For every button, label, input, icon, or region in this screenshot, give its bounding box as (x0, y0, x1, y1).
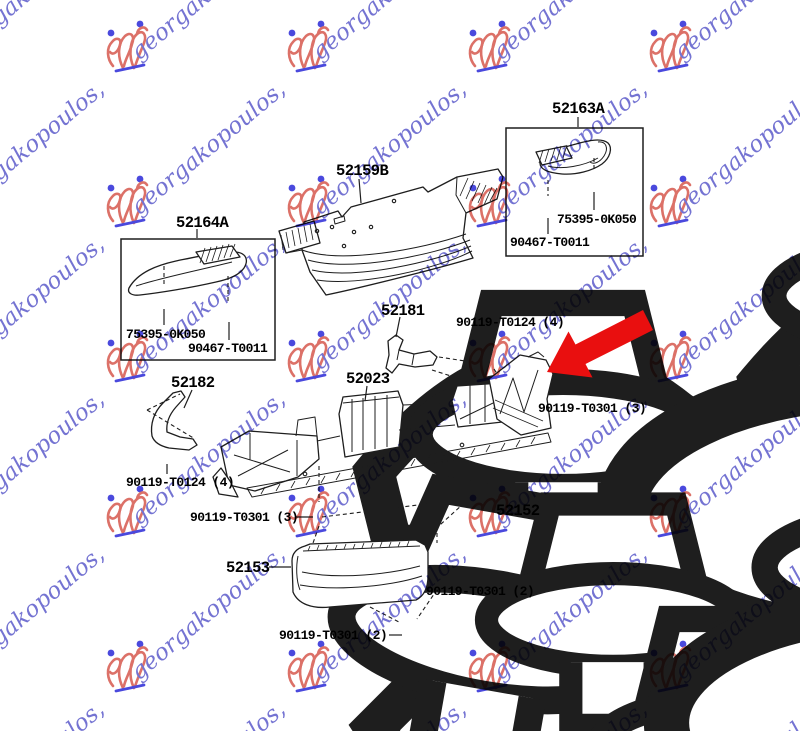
red-highlight-arrow (547, 310, 653, 378)
highlight-arrow-layer (0, 0, 800, 731)
parts-catalog-page: 52163A52159B52164A75395-0K05090467-T0011… (0, 0, 800, 731)
